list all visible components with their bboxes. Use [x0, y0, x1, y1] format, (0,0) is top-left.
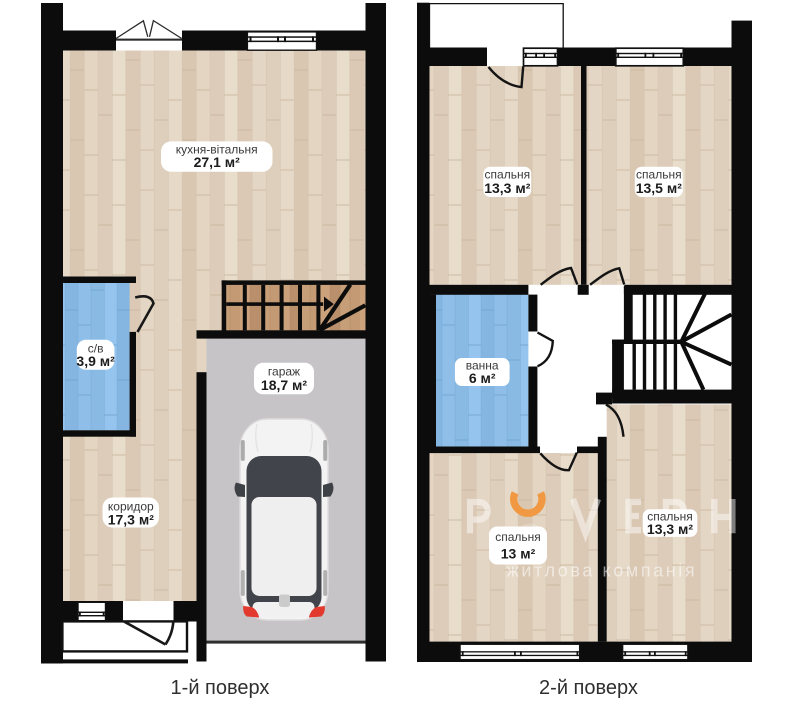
svg-text:13,3 м²: 13,3 м²: [484, 180, 530, 196]
svg-text:3,9 м²: 3,9 м²: [76, 353, 115, 369]
svg-text:13 м²: 13 м²: [501, 546, 536, 562]
svg-text:1-й поверх: 1-й поверх: [171, 677, 270, 699]
svg-text:6 м²: 6 м²: [469, 370, 496, 386]
svg-text:2-й поверх: 2-й поверх: [539, 677, 638, 699]
svg-text:27,1 м²: 27,1 м²: [194, 154, 240, 170]
svg-text:13,3 м²: 13,3 м²: [647, 521, 693, 537]
svg-text:13,5 м²: 13,5 м²: [636, 180, 682, 196]
svg-text:спальня: спальня: [495, 530, 541, 544]
svg-text:17,3 м²: 17,3 м²: [108, 512, 154, 528]
svg-text:18,7 м²: 18,7 м²: [261, 377, 307, 393]
